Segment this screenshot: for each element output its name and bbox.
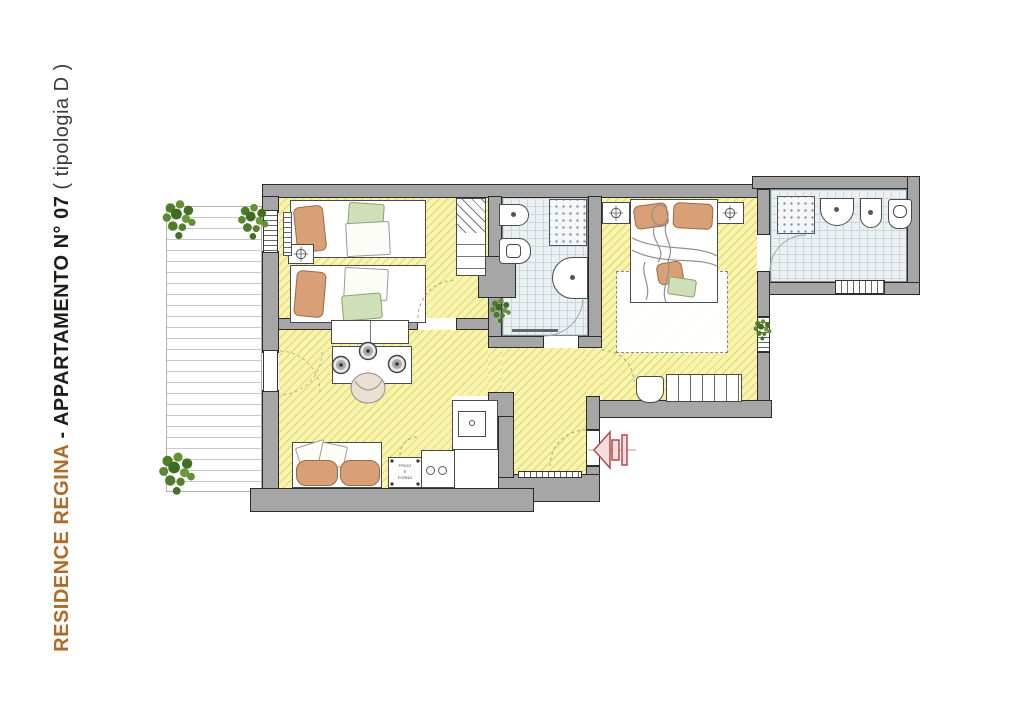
wall-master-right-1 (757, 189, 770, 235)
wall-master-bottom (590, 400, 772, 418)
wall-top-right (752, 176, 920, 189)
nightstand (602, 202, 630, 224)
bidet-drain (868, 210, 873, 215)
washbasin-drain (570, 275, 575, 280)
terrace (166, 206, 262, 492)
wall-master-right-2 (757, 271, 770, 317)
blanket (341, 292, 383, 321)
entrance-door-opening (586, 430, 600, 466)
fridge-oven-unit: FRIGO E FORNO (388, 457, 422, 488)
appliance-label-line3: FORNO (389, 475, 421, 481)
pillow (672, 202, 713, 230)
nightstand (716, 202, 744, 224)
wall-bedroom-living-2 (456, 318, 490, 330)
wall-hall-right-upper (586, 396, 600, 430)
sofa-cushion (296, 460, 338, 486)
floor-plan: FRIGO E FORNO (0, 0, 1024, 715)
wall-bottom-outer (250, 488, 534, 512)
wall-ensuite-right (907, 176, 920, 290)
sofa-cushion (340, 460, 380, 486)
wall-top-main (262, 184, 758, 198)
faucet (469, 420, 475, 426)
floor-hallway-master-door (586, 348, 602, 396)
cushion (667, 276, 697, 298)
wall-left-2 (262, 251, 279, 353)
window-bathroom-ensuite (835, 280, 885, 294)
wall-bath-bottom-1 (488, 336, 544, 348)
window-bedroom-twin (263, 210, 278, 253)
pillow (293, 270, 327, 318)
window-hall-bottom (518, 471, 582, 478)
floor-passage (488, 348, 502, 392)
shower-tray-icon (777, 196, 815, 234)
hob-burner (438, 466, 447, 475)
wall-kitchen-hall-2 (498, 416, 514, 478)
toilet-seat (506, 244, 521, 258)
washbasin-drain (834, 207, 839, 212)
floor-hallway (502, 348, 586, 474)
towel-rail (512, 329, 558, 332)
radiator (283, 212, 292, 256)
dining-table (332, 346, 412, 384)
wall-left-3 (262, 390, 279, 491)
toilet-seat (893, 205, 907, 218)
bidet-drain (511, 212, 516, 217)
hob-burner (426, 466, 435, 475)
french-door-living (263, 350, 278, 392)
sideboard (331, 320, 409, 344)
wardrobe-shelves (457, 233, 485, 275)
page: { "title": { "project": "RESIDENCE REGIN… (0, 0, 1024, 715)
wardrobe-hatch (457, 199, 485, 233)
armchair (636, 376, 664, 403)
sideboard-divider (370, 321, 371, 343)
window-master (757, 317, 770, 352)
blanket-fold (345, 221, 391, 257)
wardrobe-master (666, 374, 742, 402)
shower-tray-icon (549, 199, 587, 246)
pillow (632, 202, 669, 230)
wall-bath-master-vertical (588, 196, 602, 348)
wardrobe-twin (456, 198, 486, 276)
wall-bath-bottom-2 (578, 336, 602, 348)
